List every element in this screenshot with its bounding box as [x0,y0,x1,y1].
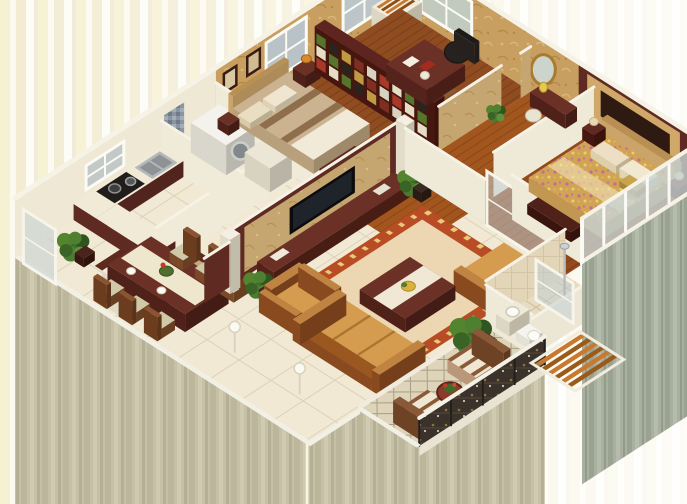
bath2-sink [506,307,519,317]
cooking-pot-2 [126,177,136,185]
dressing-lamp [539,82,547,92]
shower-head [560,243,569,249]
cooking-pot-1 [109,184,121,193]
balcony-flower-1 [443,383,447,387]
dressing-mirror [531,55,555,85]
master-lamp-1 [589,118,598,126]
fruit-grapes [401,282,407,287]
bed2-lamp [301,55,311,63]
desk-lamp [420,71,429,79]
study-south-wall-2 [521,47,531,99]
plate-1 [127,268,136,275]
apartment-render-stage [0,0,687,504]
dining-centerpiece [159,266,173,276]
shapes-root [15,0,687,504]
balcony-flower-2 [452,383,456,387]
plate-2 [157,287,166,294]
centerpiece-flowers [161,262,166,267]
dressing-chair [525,109,541,122]
apartment-3d-floorplan [0,0,687,504]
